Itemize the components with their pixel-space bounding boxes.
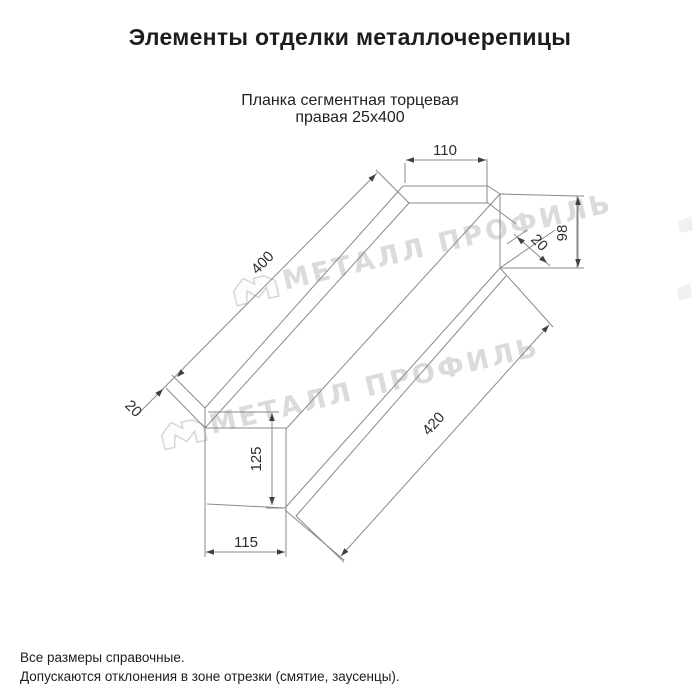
dim-label-115: 115 xyxy=(234,534,258,551)
footnote-line2: Допускаются отклонения в зоне отрезки (с… xyxy=(20,667,400,686)
dim-label-400: 400 xyxy=(248,248,278,278)
dimension-115: 115 xyxy=(206,534,285,555)
footnote-line1: Все размеры справочные. xyxy=(20,648,400,667)
dimension-110: 110 xyxy=(405,142,486,183)
dim-label-20-left: 20 xyxy=(121,397,145,421)
metal-profil-logo-icon xyxy=(159,416,207,450)
watermark-edge-fragments xyxy=(677,216,693,301)
watermark-upper: МЕТАЛЛ ПРОФИЛЬ xyxy=(231,188,615,306)
watermark-text: МЕТАЛЛ ПРОФИЛЬ xyxy=(206,332,542,441)
drawing-page: Элементы отделки металлочерепицы Планка … xyxy=(0,0,700,700)
watermark-lower: МЕТАЛЛ ПРОФИЛЬ xyxy=(159,332,542,450)
dim-label-420: 420 xyxy=(419,409,448,439)
footnotes: Все размеры справочные. Допускаются откл… xyxy=(20,648,400,686)
metal-profil-logo-icon xyxy=(231,272,279,306)
dim-label-125: 125 xyxy=(248,446,265,471)
dim-label-110: 110 xyxy=(433,142,457,159)
dim-label-98: 98 xyxy=(554,225,571,242)
technical-drawing: МЕТАЛЛ ПРОФИЛЬ МЕТАЛЛ ПРОФИЛЬ xyxy=(0,0,700,700)
